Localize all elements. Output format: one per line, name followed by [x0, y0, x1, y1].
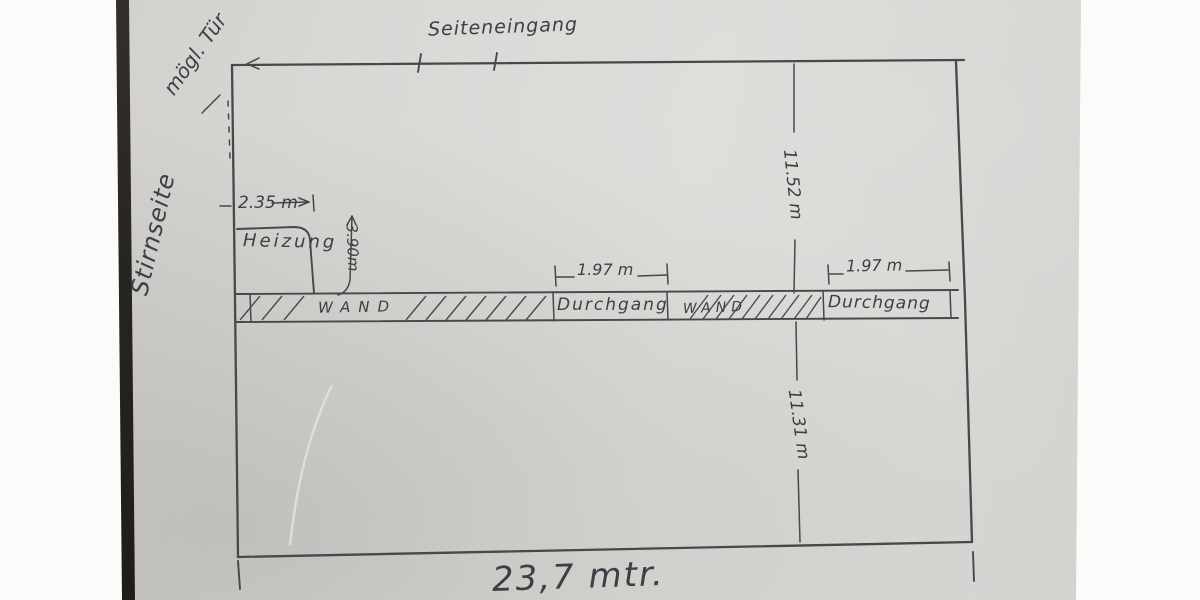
label-heating: Heizung [243, 232, 338, 252]
label-passage-right: Durchgang [828, 294, 931, 313]
label-passage-left: Durchgang [557, 297, 669, 314]
dim-passage-left: 1.97 m [577, 262, 633, 278]
possible-door-marks [202, 58, 259, 158]
dim-total-width: 23,7 mtr. [491, 557, 665, 597]
paper-crease [290, 385, 332, 545]
dim-heating-width: 2.35 m [238, 195, 298, 212]
dim-heating-depth: 3.90m [343, 212, 360, 282]
photo-of-sketch: mögl. Tür Seiteneingang Stirnseite 2.35 … [0, 0, 1200, 600]
label-wall-left: WAND [318, 299, 397, 315]
label-wall-right: WAND [683, 300, 747, 316]
label-side-entrance: Seiteneingang [428, 15, 579, 39]
dim-passage-right: 1.97 m [846, 258, 903, 275]
